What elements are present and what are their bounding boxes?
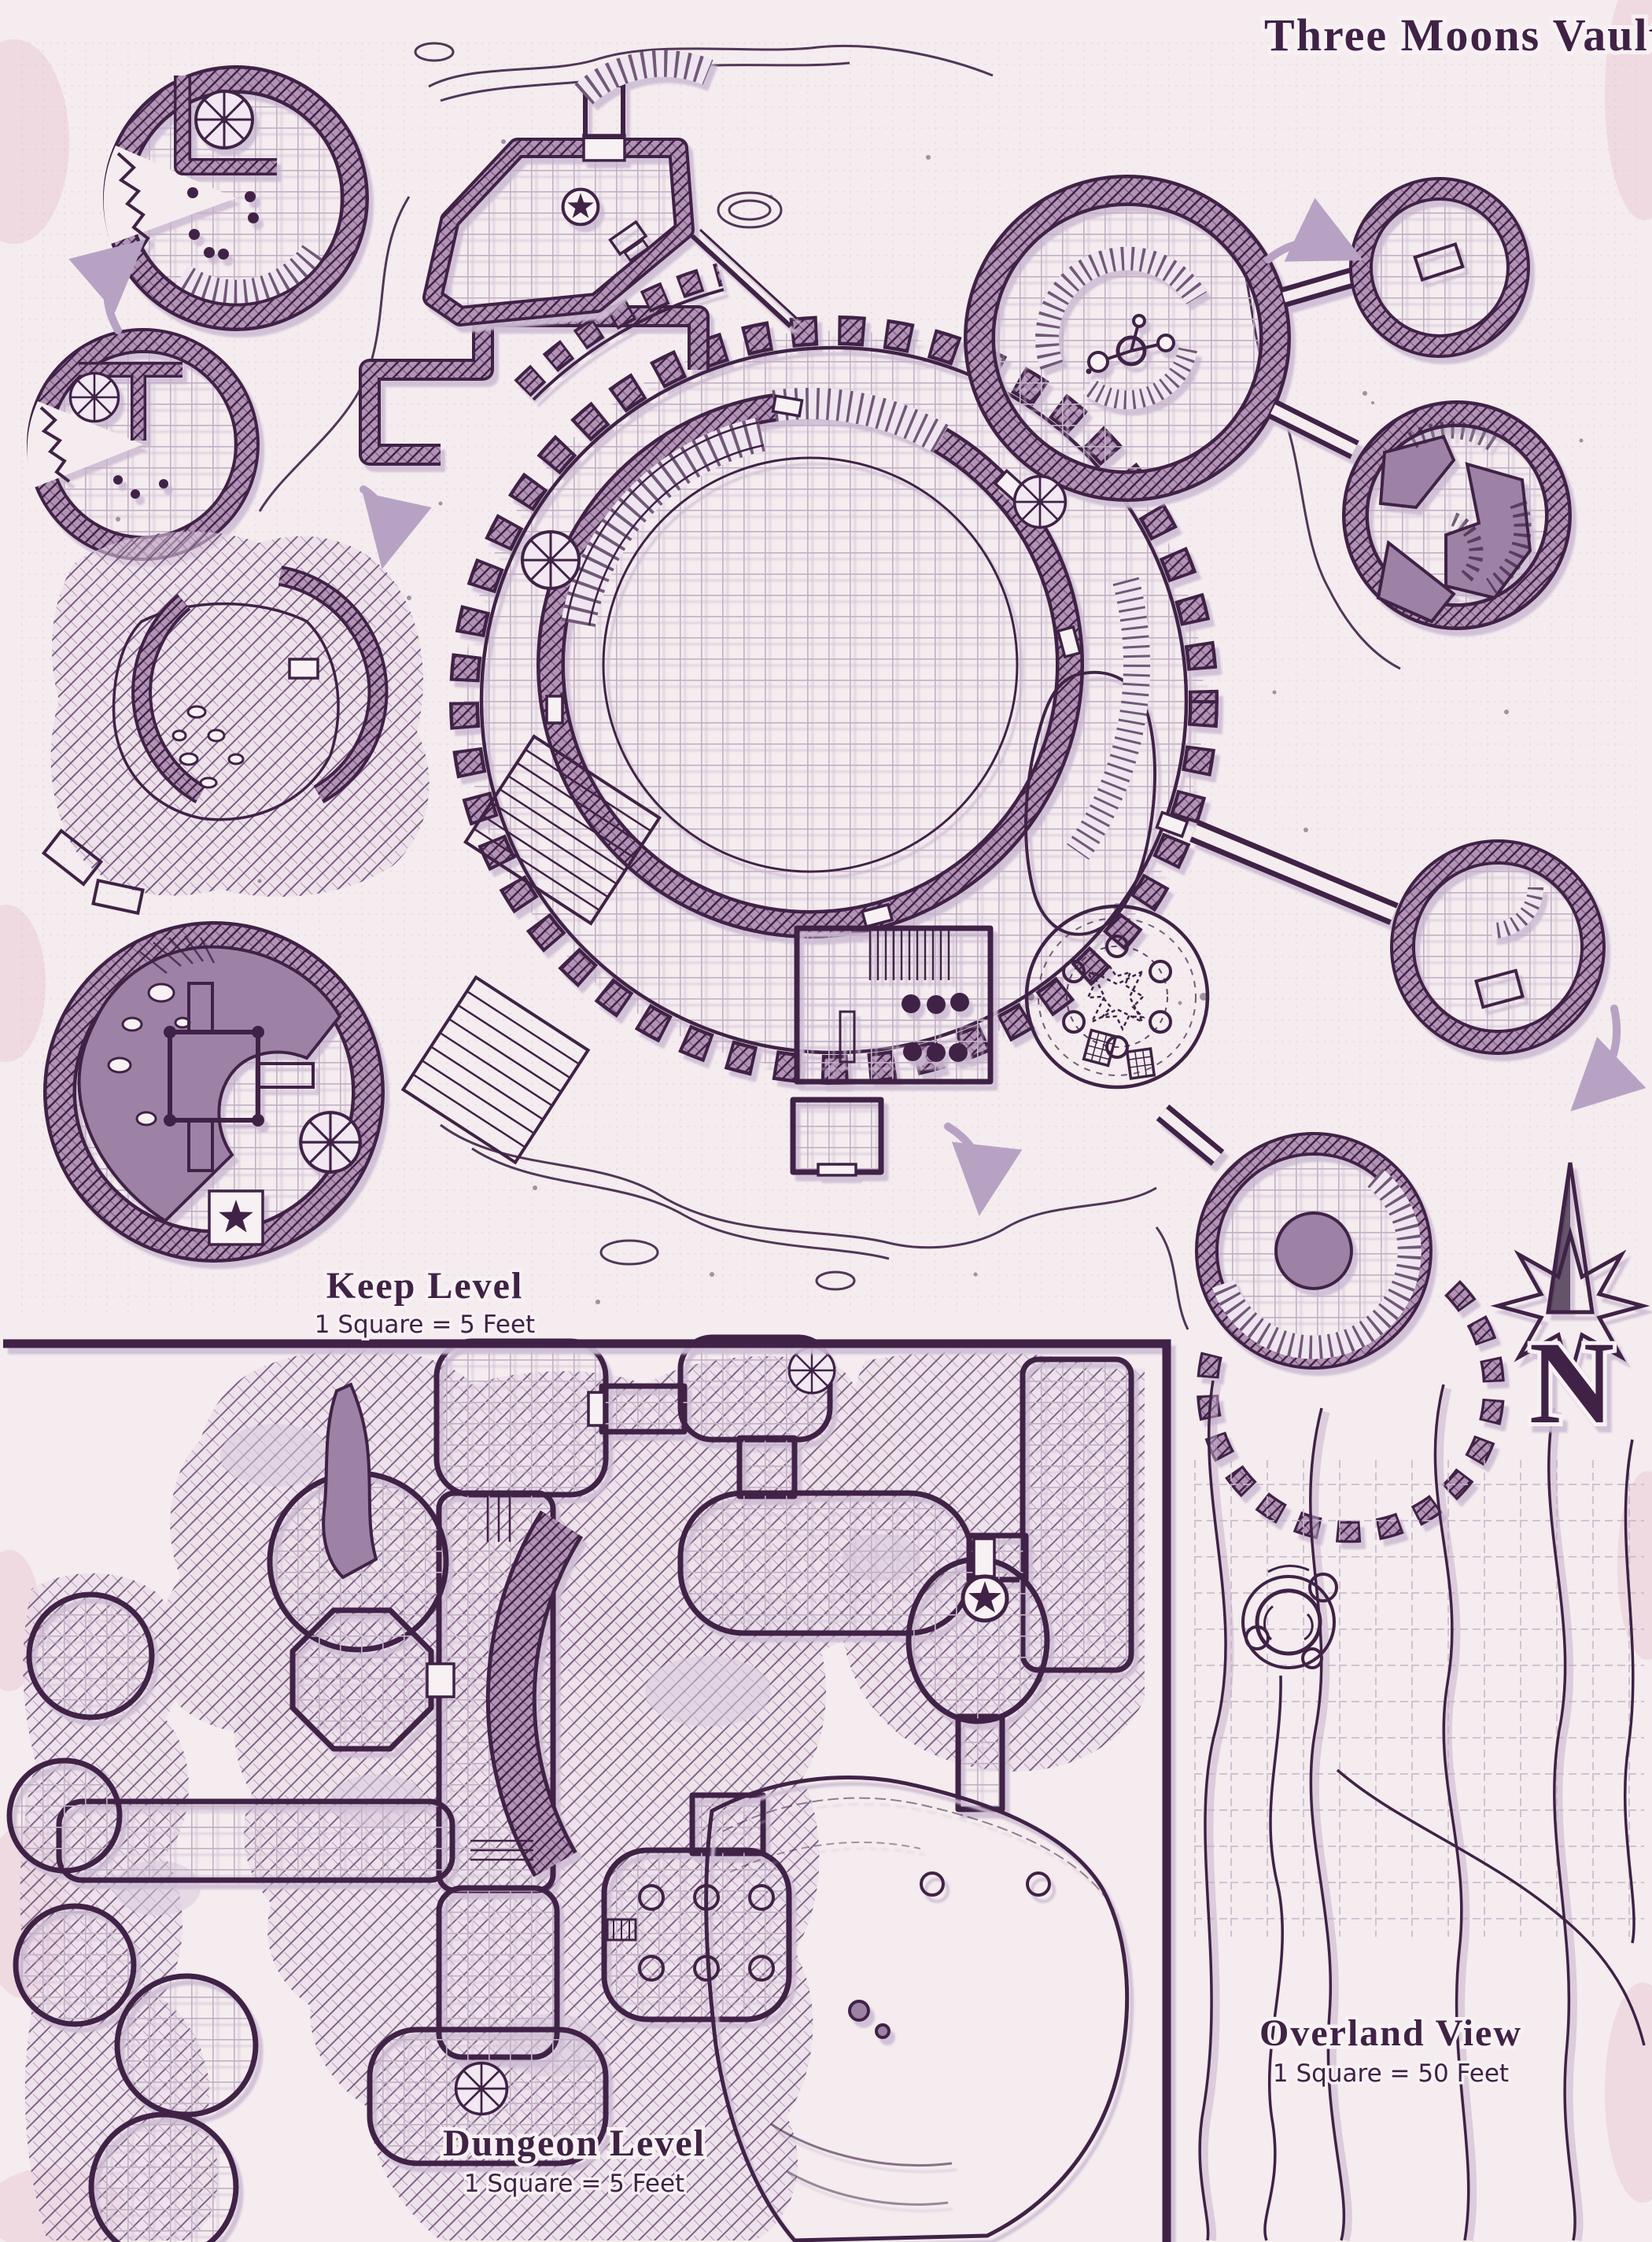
- section-label: Overland View: [1259, 2012, 1522, 2054]
- tower-west: [28, 329, 259, 560]
- map-canvas: N Three Moons Vault Keep Level 1 Square …: [0, 0, 1652, 2242]
- tower-northwest-broken: [104, 66, 368, 330]
- spiral-stair-icon: [301, 1112, 360, 1172]
- dungeon-level-label: Dungeon Level 1 Square = 5 Feet: [443, 2122, 706, 2198]
- star-marker-icon: [963, 1576, 1007, 1621]
- spiral-stair-icon: [196, 91, 253, 148]
- section-scale: 1 Square = 50 Feet: [1273, 2059, 1509, 2088]
- tower-northeast: [966, 177, 1289, 502]
- star-marker-icon: [563, 190, 599, 225]
- spiral-stair-icon: [456, 2063, 507, 2115]
- compass-north-label: N: [1529, 1318, 1614, 1448]
- section-scale: 1 Square = 5 Feet: [315, 1311, 535, 1339]
- spiral-stair-icon: [1015, 477, 1066, 528]
- section-label: Keep Level: [326, 1265, 524, 1307]
- section-scale: 1 Square = 5 Feet: [464, 2170, 684, 2198]
- door: [289, 659, 318, 678]
- gatehouse: [793, 1100, 881, 1172]
- map-page: N Three Moons Vault Keep Level 1 Square …: [0, 0, 1652, 2242]
- west-cave-ruin: [44, 532, 430, 913]
- spiral-stair-icon: [522, 532, 579, 588]
- dais: [1276, 1213, 1351, 1289]
- great-hall: [797, 928, 990, 1082]
- octagon-room: [293, 1610, 431, 1749]
- map-title: Three Moons Vault: [1264, 9, 1652, 61]
- keep-level-map: [16, 39, 1636, 1532]
- tower-southwest-water: [45, 923, 383, 1261]
- spiral-stair-icon: [70, 373, 118, 421]
- keep-level-label: Keep Level 1 Square = 5 Feet: [315, 1265, 535, 1339]
- overland-grid: [1194, 1457, 1644, 1937]
- pillar-room: [604, 1850, 789, 2019]
- spiral-stair-icon: [789, 1348, 835, 1393]
- section-label: Dungeon Level: [443, 2122, 706, 2164]
- overland-view-label: Overland View 1 Square = 50 Feet: [1259, 2012, 1522, 2088]
